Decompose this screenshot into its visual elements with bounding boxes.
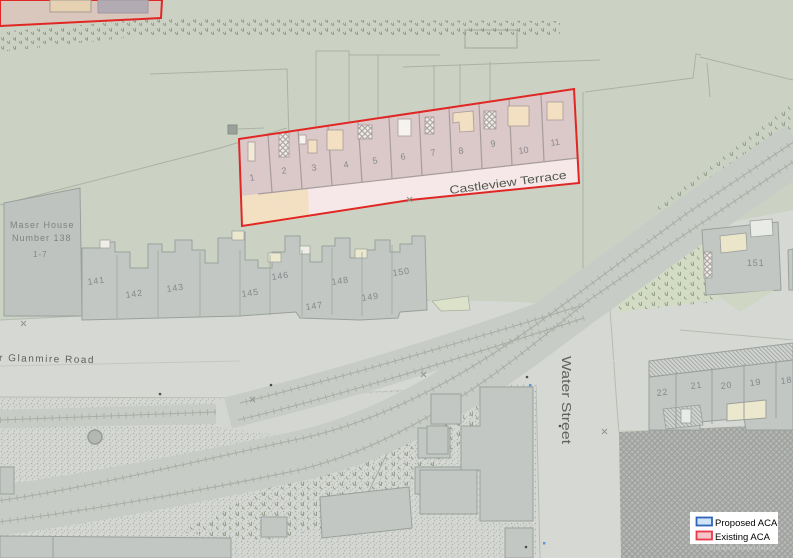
svg-text:22: 22 xyxy=(656,387,669,398)
svg-text:20: 20 xyxy=(720,380,733,391)
svg-text:10: 10 xyxy=(518,145,529,156)
svg-text:Water Street: Water Street xyxy=(559,356,574,444)
svg-text:Proposed ACA: Proposed ACA xyxy=(715,518,778,529)
svg-text:19: 19 xyxy=(749,377,762,388)
svg-text:1-7: 1-7 xyxy=(33,250,48,259)
svg-text:Number 138: Number 138 xyxy=(12,233,72,243)
svg-text:Existing ACA: Existing ACA xyxy=(715,532,771,543)
svg-text:18: 18 xyxy=(780,375,793,386)
svg-text:er Glanmire Road: er Glanmire Road xyxy=(0,353,95,366)
svg-text:21: 21 xyxy=(690,380,703,391)
svg-text:© Ordnance Survey Ireland: © Ordnance Survey Ireland xyxy=(703,544,775,552)
svg-text:11: 11 xyxy=(550,137,561,148)
svg-text:151: 151 xyxy=(747,258,764,268)
svg-text:Maser House: Maser House xyxy=(10,220,75,230)
